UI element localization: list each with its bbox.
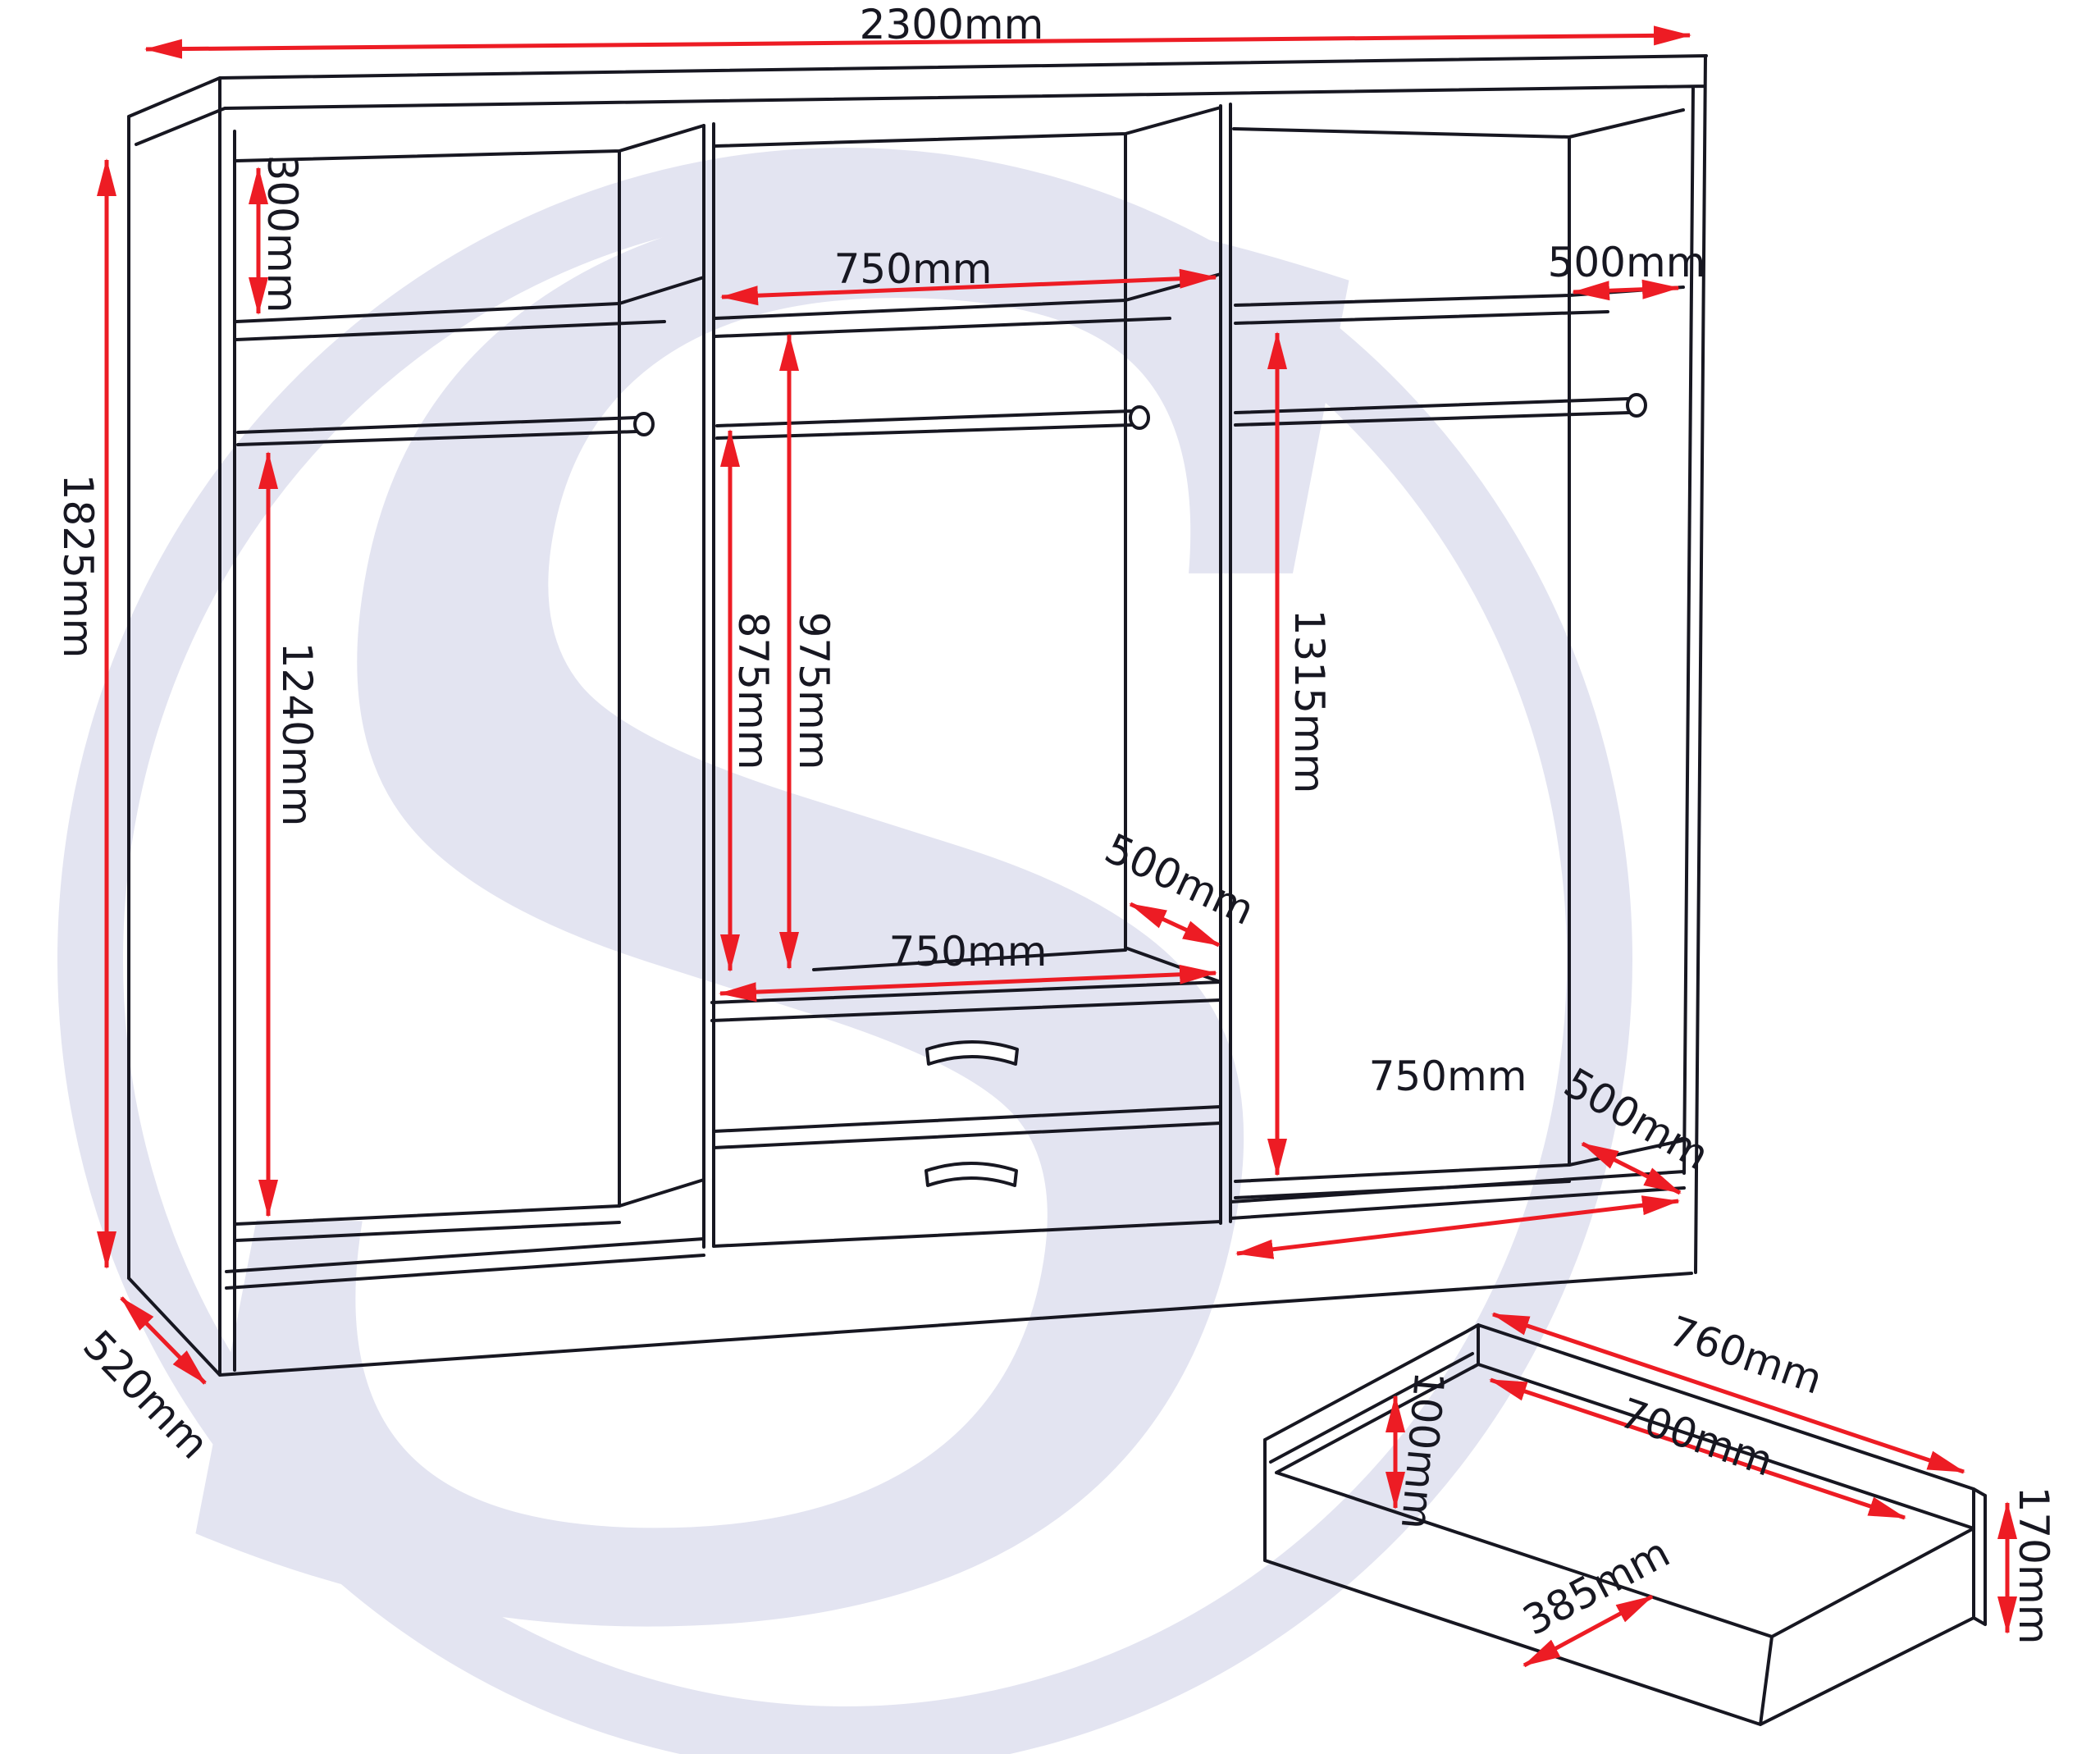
middle-rail-to-drawers-label: 875mm xyxy=(729,612,777,770)
right-base-width-label: 750mm xyxy=(1369,1053,1527,1100)
left-top-shelf-drop-label: 300mm xyxy=(258,155,306,313)
right-shelf-depth-label: 500mm xyxy=(1548,239,1706,286)
overall-width-label: 2300mm xyxy=(860,1,1044,48)
drawer-top-width-label: 750mm xyxy=(889,928,1048,975)
dimension-right-shelf-depth: 500mm xyxy=(1548,239,1706,292)
drawer-outer-width-label: 760mm xyxy=(1663,1307,1828,1404)
hanging-rail-right-cap xyxy=(1627,395,1646,416)
left-hanging-height-label: 1240mm xyxy=(273,642,321,827)
right-shelf-to-base-label: 1315mm xyxy=(1285,610,1333,794)
drawer-front-height-label: 170mm xyxy=(2010,1487,2057,1645)
dimension-drawer-front-height: 170mm xyxy=(2007,1487,2057,1645)
wardrobe-dimension-diagram: S 2300mm 1825mm xyxy=(0,0,2100,1754)
middle-shelf-width-label: 750mm xyxy=(834,245,993,293)
dimension-drawer-inner-width: 700mm xyxy=(1491,1380,1905,1518)
middle-shelf-to-drawers-label: 975mm xyxy=(790,612,838,770)
dimension-left-top-shelf-drop: 300mm xyxy=(258,155,306,313)
overall-height-label: 1825mm xyxy=(54,474,102,659)
right-shelf-depth-arrow xyxy=(1573,288,1678,292)
technical-drawing-page: S 2300mm 1825mm xyxy=(0,0,2100,1754)
hanging-rail-left-cap xyxy=(635,413,653,435)
hanging-rail-middle-cap xyxy=(1130,407,1148,428)
